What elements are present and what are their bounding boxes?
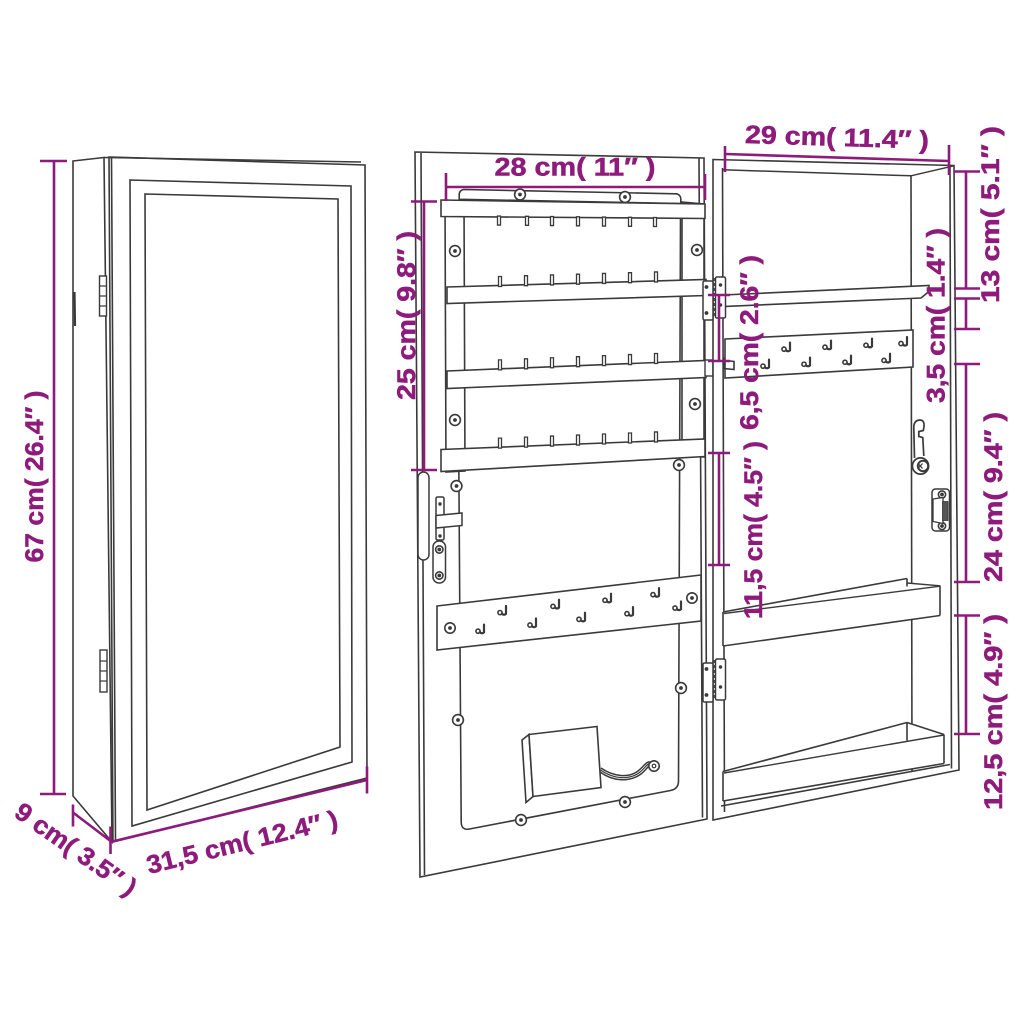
svg-text:67 cm( 26.4″ ): 67 cm( 26.4″ ) xyxy=(21,391,49,563)
svg-text:24 cm( 9.4″ ): 24 cm( 9.4″ ) xyxy=(980,412,1008,582)
svg-text:28 cm( 11″ ): 28 cm( 11″ ) xyxy=(495,153,656,181)
svg-text:12,5 cm( 4.9″ ): 12,5 cm( 4.9″ ) xyxy=(980,614,1008,810)
svg-text:29 cm( 11.4″ ): 29 cm( 11.4″ ) xyxy=(745,121,930,155)
svg-text:6,5 cm( 2.6″ ): 6,5 cm( 2.6″ ) xyxy=(736,255,764,430)
svg-text:11,5 cm( 4.5″ ): 11,5 cm( 4.5″ ) xyxy=(740,441,768,619)
svg-text:3,5 cm( 1.4″ ): 3,5 cm( 1.4″ ) xyxy=(922,228,950,403)
svg-text:13 cm( 5.1″ ): 13 cm( 5.1″ ) xyxy=(977,126,1005,303)
svg-text:25 cm( 9.8″ ): 25 cm( 9.8″ ) xyxy=(393,231,421,400)
